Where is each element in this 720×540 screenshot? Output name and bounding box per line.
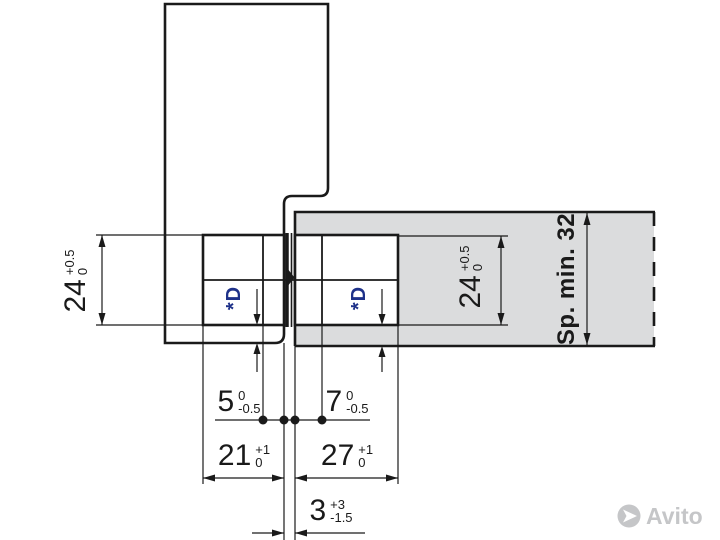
dim-tolerance: 0 -0.5	[346, 390, 368, 415]
dim-label-7: 7 0 -0.5	[325, 387, 368, 417]
dim-tolerance: 0 -0.5	[238, 390, 260, 415]
dim-label-5: 5 0 -0.5	[217, 387, 260, 417]
dim-label-27: 27 +1 0	[321, 441, 373, 471]
dim-value: 3	[309, 496, 326, 526]
dim-value: 5	[217, 387, 234, 417]
frame-thickness-text: Sp. min. 32	[555, 213, 579, 345]
avito-watermark-text: Avito	[646, 505, 703, 528]
dim-value: 21	[218, 441, 251, 471]
dim-label-21: 21 +1 0	[218, 441, 270, 471]
dim-label-24-frame: 24 +0.5 0	[456, 245, 486, 308]
technical-drawing: 24 +0.5 0 24 +0.5 0 Sp. min. 32 5 0 -0.5…	[0, 0, 720, 540]
dim-tolerance: +1 0	[358, 444, 373, 469]
dim-tolerance: +1 0	[255, 444, 270, 469]
dim-value: 24	[456, 275, 486, 308]
dim-tolerance: +0.5 0	[64, 249, 89, 275]
dim-value: 24	[61, 279, 91, 312]
dim-label-frame-thickness: Sp. min. 32	[555, 213, 579, 345]
drill-diameter-label-door: *D	[224, 286, 244, 310]
dim-tolerance: +0.5 0	[459, 245, 484, 271]
dim-label-3: 3 +3 -1.5	[309, 496, 352, 526]
dim-label-24-door: 24 +0.5 0	[61, 249, 91, 312]
dim-value: 7	[325, 387, 342, 417]
avito-watermark-icon	[618, 505, 641, 528]
dim-tolerance: +3 -1.5	[330, 499, 352, 524]
drill-diameter-label-frame: *D	[349, 286, 369, 310]
dim-value: 27	[321, 441, 354, 471]
